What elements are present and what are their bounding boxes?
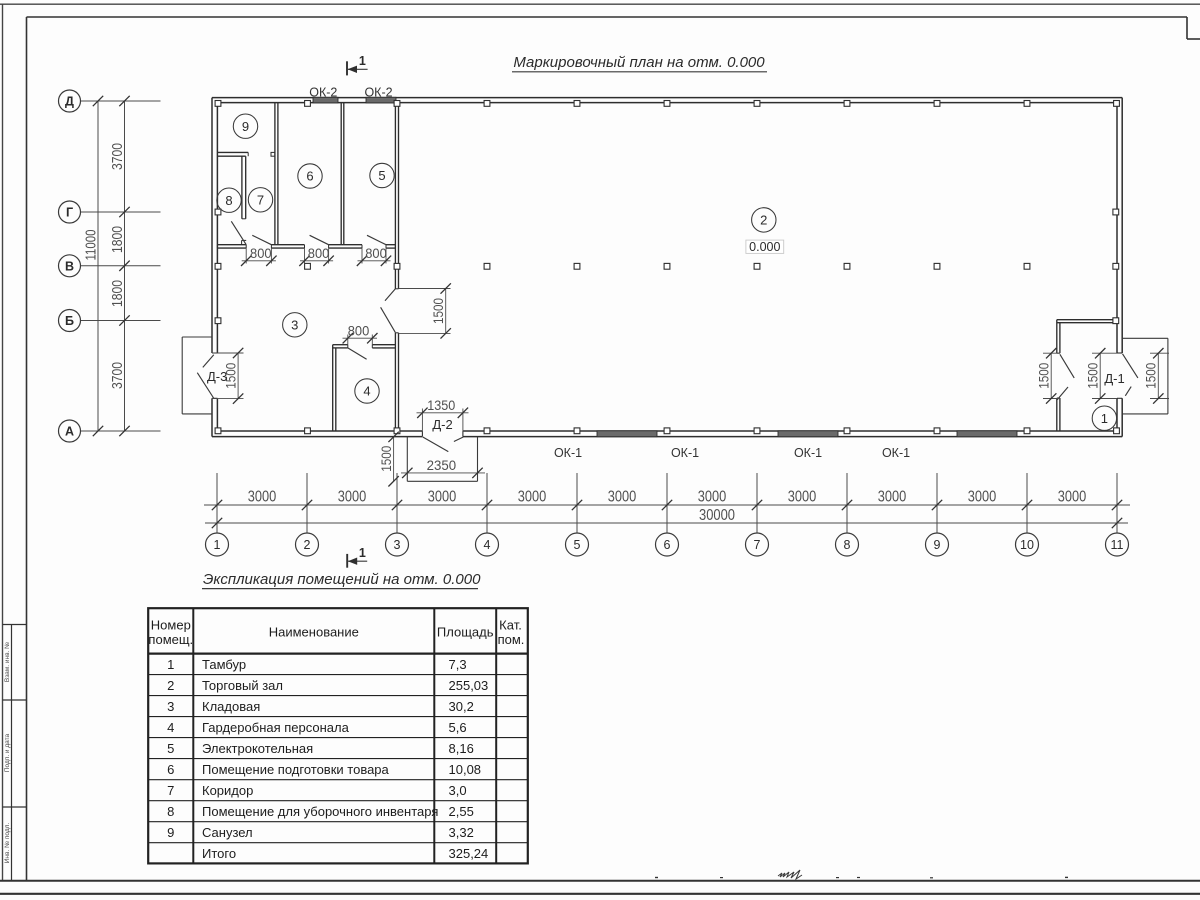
svg-text:5: 5 [167, 741, 174, 756]
svg-text:Подп. и дата: Подп. и дата [4, 733, 11, 772]
svg-text:ОК-1: ОК-1 [671, 446, 699, 460]
svg-text:4: 4 [363, 384, 370, 399]
svg-text:3000: 3000 [1058, 489, 1087, 506]
svg-text:Коридор: Коридор [202, 783, 253, 798]
svg-text:30000: 30000 [699, 507, 735, 524]
svg-text:800: 800 [365, 245, 387, 261]
svg-text:5: 5 [574, 538, 581, 552]
svg-text:1350: 1350 [427, 397, 455, 413]
svg-text:325,24: 325,24 [449, 846, 489, 861]
svg-text:А: А [65, 425, 74, 439]
svg-text:3,32: 3,32 [449, 825, 474, 840]
svg-text:2: 2 [167, 678, 174, 693]
svg-text:2: 2 [304, 538, 311, 552]
svg-text:1: 1 [1101, 411, 1108, 426]
svg-text:В: В [65, 259, 74, 273]
svg-text:2: 2 [760, 213, 767, 228]
svg-text:3000: 3000 [788, 489, 817, 506]
svg-text:7,3: 7,3 [449, 657, 467, 672]
svg-text:0.000: 0.000 [749, 240, 780, 254]
svg-text:8: 8 [844, 538, 851, 552]
svg-text:3,0: 3,0 [449, 783, 467, 798]
svg-text:Д-2: Д-2 [432, 417, 452, 432]
svg-text:Г: Г [66, 206, 73, 220]
svg-text:11000: 11000 [83, 230, 100, 261]
svg-text:Маркировочный план на отм. 0.0: Маркировочный план на отм. 0.000 [513, 54, 765, 71]
svg-text:3: 3 [394, 538, 401, 552]
svg-text:9: 9 [934, 538, 941, 552]
svg-text:3700: 3700 [109, 362, 126, 389]
svg-text:30,2: 30,2 [449, 699, 474, 714]
svg-text:10,08: 10,08 [449, 762, 482, 777]
svg-text:6: 6 [306, 169, 313, 184]
svg-text:7: 7 [257, 192, 264, 207]
svg-text:Кат.: Кат. [499, 618, 522, 633]
svg-text:8: 8 [167, 804, 174, 819]
svg-text:255,03: 255,03 [449, 678, 489, 693]
svg-text:ОК-2: ОК-2 [364, 85, 392, 99]
svg-text:помещ.: помещ. [148, 632, 193, 647]
svg-text:3000: 3000 [428, 489, 457, 506]
svg-text:6: 6 [167, 762, 174, 777]
svg-text:Инв. № подл.: Инв. № подл. [4, 823, 11, 864]
svg-text:ОК-1: ОК-1 [882, 446, 910, 460]
svg-text:8: 8 [225, 193, 232, 208]
svg-text:Взам. инв. №: Взам. инв. № [4, 642, 11, 682]
svg-text:1: 1 [214, 538, 221, 552]
svg-text:2,55: 2,55 [449, 804, 474, 819]
svg-text:1500: 1500 [378, 446, 394, 472]
svg-text:Площадь: Площадь [437, 625, 494, 640]
svg-text:4: 4 [167, 720, 174, 735]
svg-text:ОК-1: ОК-1 [794, 446, 822, 460]
svg-text:7: 7 [754, 538, 761, 552]
svg-text:пом.: пом. [498, 632, 525, 647]
svg-text:Д-1: Д-1 [1104, 371, 1124, 386]
svg-text:1500: 1500 [430, 298, 446, 324]
svg-text:1500: 1500 [1143, 363, 1159, 389]
svg-text:11: 11 [1111, 538, 1124, 552]
svg-text:Кладовая: Кладовая [202, 699, 260, 714]
svg-text:3700: 3700 [109, 143, 126, 170]
svg-text:800: 800 [348, 322, 370, 338]
svg-text:800: 800 [250, 245, 272, 261]
svg-text:1500: 1500 [1036, 363, 1052, 389]
svg-text:2350: 2350 [427, 457, 457, 473]
svg-text:1: 1 [359, 546, 366, 560]
svg-text:5: 5 [378, 168, 385, 183]
svg-text:Экспликация помещений на отм.: Экспликация помещений на отм. 0.000 [203, 571, 481, 588]
svg-text:Помещение подготовки товара: Помещение подготовки товара [202, 762, 390, 777]
svg-text:Торговый зал: Торговый зал [202, 678, 283, 693]
svg-text:800: 800 [308, 245, 330, 261]
svg-text:1500: 1500 [1085, 363, 1101, 389]
svg-text:3000: 3000 [518, 489, 547, 506]
svg-text:10: 10 [1020, 538, 1034, 552]
svg-text:1: 1 [167, 657, 174, 672]
svg-text:Гардеробная персонала: Гардеробная персонала [202, 720, 350, 735]
svg-text:3000: 3000 [608, 489, 637, 506]
svg-text:8,16: 8,16 [449, 741, 474, 756]
svg-text:3000: 3000 [698, 489, 727, 506]
svg-text:Наименование: Наименование [269, 625, 359, 640]
svg-text:9: 9 [242, 119, 249, 134]
svg-text:3000: 3000 [338, 489, 367, 506]
svg-text:Тамбур: Тамбур [202, 657, 246, 672]
svg-text:7: 7 [167, 783, 174, 798]
svg-text:1800: 1800 [109, 226, 126, 253]
svg-text:1: 1 [359, 54, 366, 68]
svg-text:3: 3 [291, 317, 298, 332]
svg-text:Д: Д [65, 95, 74, 109]
svg-text:Б: Б [65, 314, 74, 328]
svg-text:Итого: Итого [202, 846, 236, 861]
svg-text:3000: 3000 [968, 489, 997, 506]
svg-text:9: 9 [167, 825, 174, 840]
svg-text:3000: 3000 [878, 489, 907, 506]
svg-text:4: 4 [484, 538, 491, 552]
svg-text:Номер: Номер [151, 618, 191, 633]
svg-text:Д-3: Д-3 [207, 369, 227, 384]
svg-text:3: 3 [167, 699, 174, 714]
svg-text:ОК-1: ОК-1 [554, 446, 582, 460]
svg-text:Помещение для уборочного инвен: Помещение для уборочного инвентаря [202, 804, 438, 819]
svg-text:5,6: 5,6 [449, 720, 467, 735]
svg-text:ОК-2: ОК-2 [309, 85, 337, 99]
svg-text:Электрокотельная: Электрокотельная [202, 741, 313, 756]
svg-text:3000: 3000 [248, 489, 277, 506]
svg-text:Санузел: Санузел [202, 825, 253, 840]
svg-text:1800: 1800 [109, 280, 126, 307]
svg-text:6: 6 [664, 538, 671, 552]
